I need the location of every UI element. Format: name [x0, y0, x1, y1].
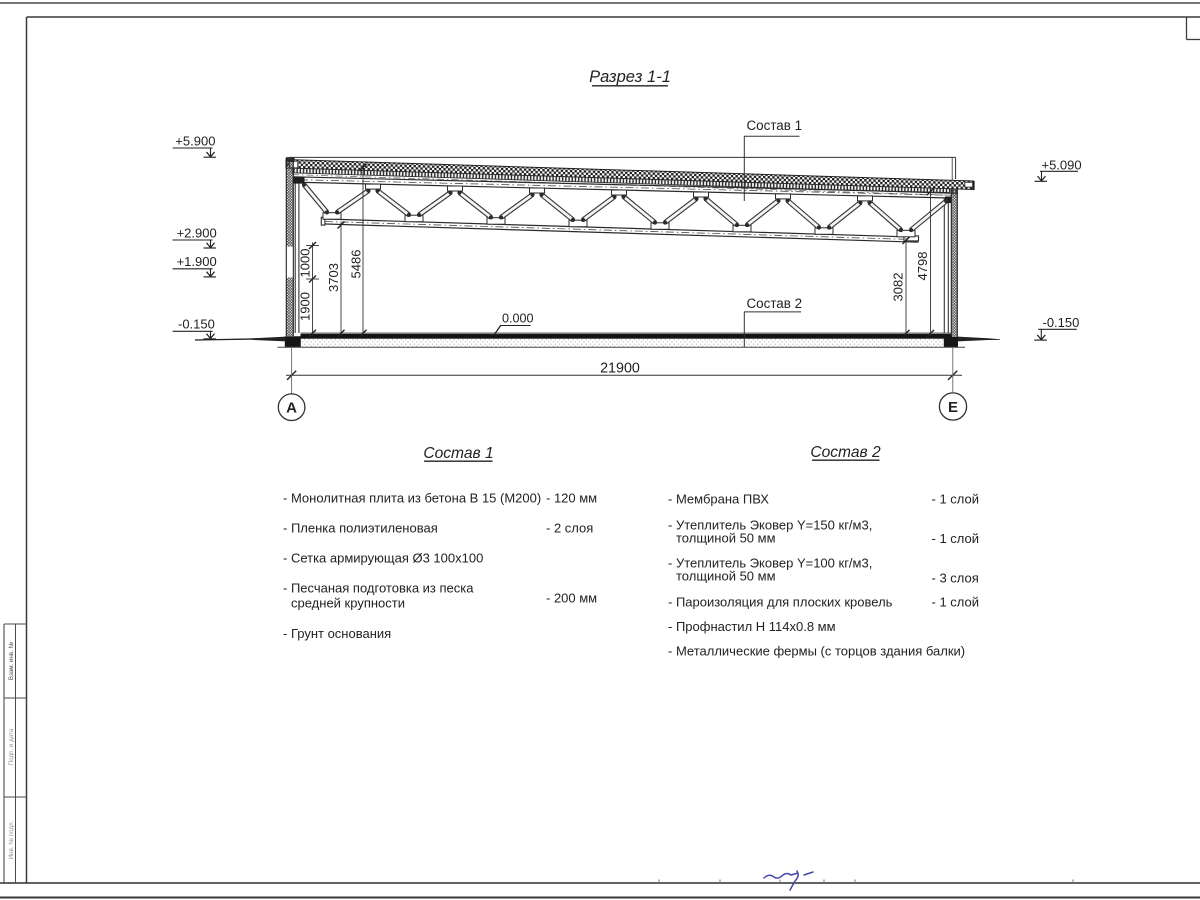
svg-text:- 200 мм: - 200 мм [546, 591, 597, 606]
svg-text:- 120 мм: - 120 мм [546, 491, 597, 506]
svg-text:- Грунт основания: - Грунт основания [283, 626, 391, 641]
svg-text:+5.900: +5.900 [175, 133, 215, 148]
svg-text:- Металлические фермы (с торцо: - Металлические фермы (с торцов здания б… [668, 644, 965, 659]
svg-text:Состав 2: Состав 2 [747, 296, 803, 311]
svg-text:0.000: 0.000 [502, 311, 534, 325]
svg-text:E: E [948, 399, 958, 416]
svg-text:- 1 слой: - 1 слой [932, 492, 980, 507]
svg-text:- 2 слоя: - 2 слоя [546, 521, 593, 536]
svg-text:Взам. инв. №: Взам. инв. № [8, 641, 15, 680]
svg-text:- Мембрана ПВХ: - Мембрана ПВХ [668, 492, 769, 507]
svg-text:Состав 2: Состав 2 [810, 444, 881, 461]
svg-text:-0.150: -0.150 [1043, 315, 1080, 330]
svg-text:- 3 слоя: - 3 слоя [932, 571, 979, 586]
svg-text:3082: 3082 [891, 273, 906, 302]
svg-text:толщиной 50 мм: толщиной 50 мм [676, 569, 776, 584]
svg-text:1000: 1000 [298, 249, 313, 278]
svg-text:+5.090: +5.090 [1042, 157, 1082, 172]
svg-text:A: A [286, 400, 297, 417]
svg-text:Состав 1: Состав 1 [747, 118, 803, 133]
svg-text:- Сетка армирующая Ø3 100х100: - Сетка армирующая Ø3 100х100 [283, 551, 483, 566]
svg-text:- Песчаная подготовка из песка: - Песчаная подготовка из песка [283, 581, 474, 596]
svg-text:Подп. и дата: Подп. и дата [8, 728, 15, 765]
svg-text:толщиной 50 мм: толщиной 50 мм [676, 531, 776, 546]
svg-text:4798: 4798 [915, 252, 930, 281]
svg-text:-0.150: -0.150 [178, 317, 215, 332]
svg-text:1900: 1900 [298, 292, 313, 321]
svg-text:21900: 21900 [600, 361, 640, 377]
svg-text:- Монолитная плита из бетона В: - Монолитная плита из бетона В 15 (М200) [283, 491, 541, 506]
svg-text:средней крупности: средней крупности [291, 596, 405, 611]
svg-text:- Пленка полиэтиленовая: - Пленка полиэтиленовая [283, 521, 438, 536]
svg-text:3703: 3703 [326, 263, 341, 292]
svg-text:- Профнастил Н 114х0.8 мм: - Профнастил Н 114х0.8 мм [668, 619, 836, 634]
svg-text:Состав 1: Состав 1 [423, 445, 493, 462]
svg-text:5486: 5486 [349, 250, 364, 279]
svg-text:Инв. № подл.: Инв. № подл. [8, 820, 15, 859]
svg-text:+1.900: +1.900 [177, 254, 217, 269]
svg-text:- Пароизоляция для плоских кро: - Пароизоляция для плоских кровель [668, 595, 893, 610]
svg-text:- 1 слой: - 1 слой [932, 595, 980, 610]
svg-text:- 1 слой: - 1 слой [932, 531, 980, 546]
svg-text:Разрез 1-1: Разрез 1-1 [589, 68, 671, 86]
svg-text:+2.900: +2.900 [177, 225, 217, 240]
